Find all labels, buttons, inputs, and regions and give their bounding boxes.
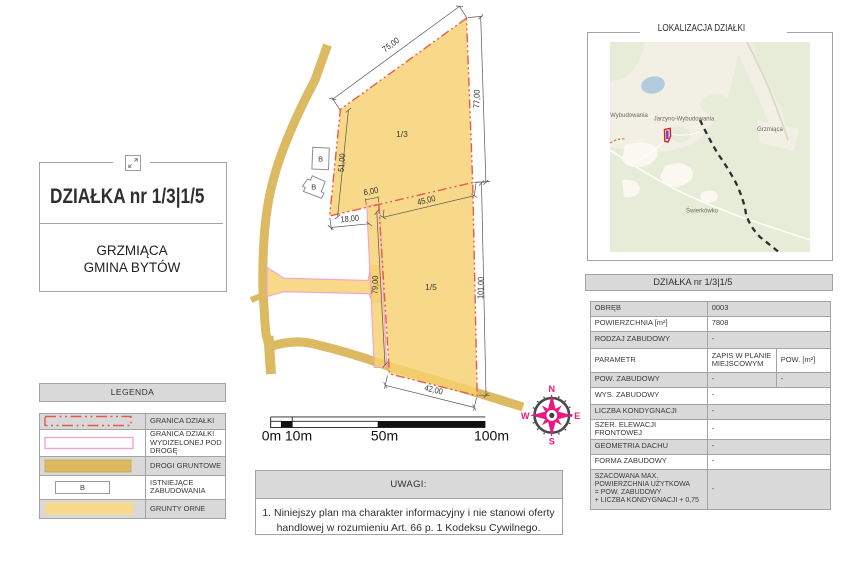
svg-text:100m: 100m xyxy=(474,428,509,444)
svg-text:Grzmiąca: Grzmiąca xyxy=(757,127,783,133)
svg-text:1/5: 1/5 xyxy=(425,282,437,292)
svg-text:B: B xyxy=(318,155,323,164)
svg-text:E: E xyxy=(574,411,580,421)
svg-text:Jarzyno-Wybudowania: Jarzyno-Wybudowania xyxy=(654,117,715,123)
svg-text:101,00: 101,00 xyxy=(475,277,485,299)
svg-text:B: B xyxy=(311,183,316,192)
svg-text:18,00: 18,00 xyxy=(340,213,360,225)
svg-text:79,00: 79,00 xyxy=(369,275,380,294)
svg-text:1/3: 1/3 xyxy=(396,129,408,139)
svg-text:N: N xyxy=(549,384,556,394)
svg-text:S: S xyxy=(549,436,555,446)
svg-text:0m: 0m xyxy=(262,428,281,444)
svg-text:W: W xyxy=(521,411,530,421)
svg-text:Świerkówko: Świerkówko xyxy=(686,207,719,215)
svg-text:Wybudowania: Wybudowania xyxy=(610,113,648,119)
svg-text:77,00: 77,00 xyxy=(471,89,482,108)
svg-text:51,00: 51,00 xyxy=(336,153,348,173)
svg-text:10m: 10m xyxy=(285,428,312,444)
svg-text:50m: 50m xyxy=(371,428,398,444)
